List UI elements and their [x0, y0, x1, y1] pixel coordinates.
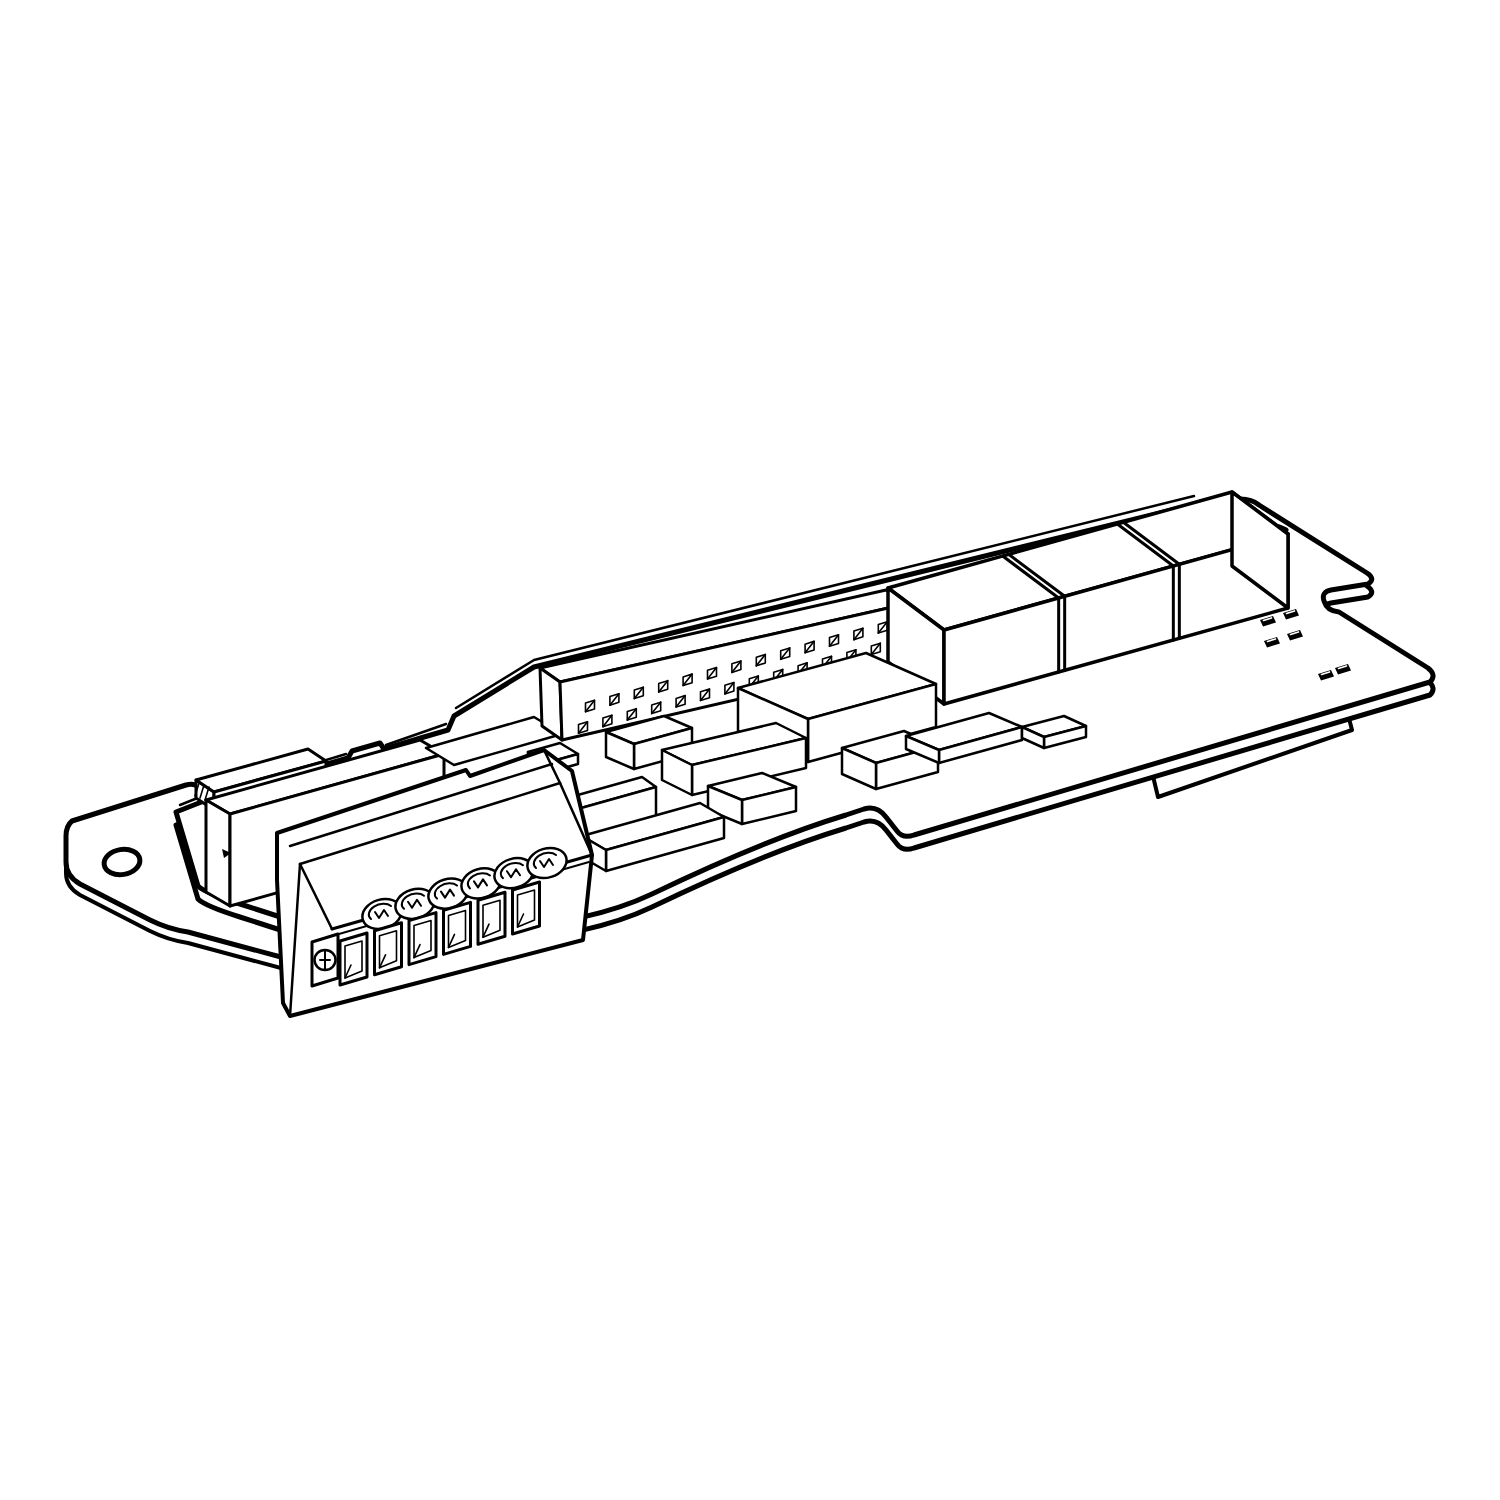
header-pin: [579, 722, 588, 733]
header-pin: [683, 674, 692, 685]
header-pin: [781, 648, 790, 659]
wire-window: [444, 902, 471, 954]
wire-window: [375, 923, 402, 975]
header-pin: [725, 683, 734, 694]
wire-window: [513, 882, 540, 934]
header-pin: [878, 622, 887, 633]
header-pin: [603, 715, 612, 726]
pcb-line-drawing: [0, 0, 1500, 1500]
header-pin: [805, 641, 814, 652]
header-pin: [854, 628, 863, 639]
header-pin: [732, 661, 741, 672]
header-pin: [871, 643, 880, 654]
header-pin: [652, 702, 661, 713]
header-pin: [830, 635, 839, 646]
wire-window: [478, 892, 505, 944]
header-pin: [676, 696, 685, 707]
header-pin: [627, 709, 636, 720]
header-pin: [756, 654, 765, 665]
header-pin: [634, 687, 643, 698]
header-pin: [701, 689, 710, 700]
header-pin: [708, 668, 717, 679]
header-pin: [610, 694, 619, 705]
wire-window: [409, 913, 436, 965]
header-pin: [586, 700, 595, 711]
release-screw-panel: [312, 934, 338, 986]
header-pin: [659, 681, 668, 692]
wire-window: [340, 933, 367, 985]
